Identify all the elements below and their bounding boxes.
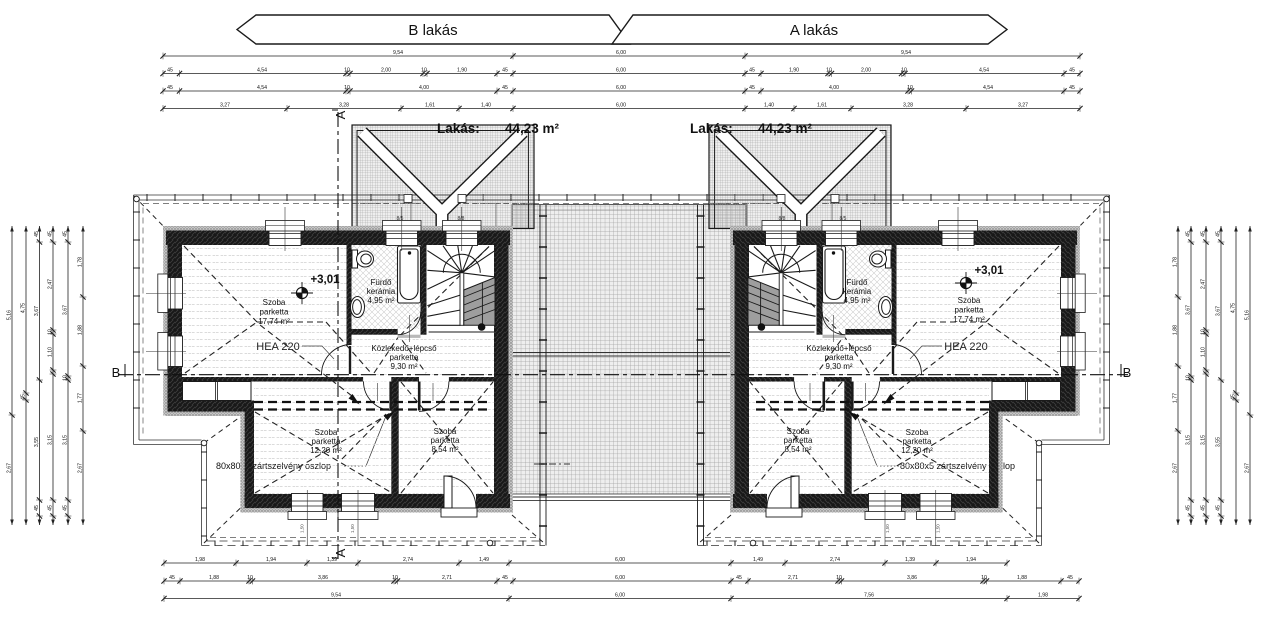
svg-text:Szoba: Szoba: [263, 298, 286, 307]
svg-text:4,54: 4,54: [983, 85, 993, 91]
svg-text:45: 45: [1186, 505, 1192, 511]
svg-text:45: 45: [502, 575, 508, 581]
svg-text:4,54: 4,54: [979, 68, 989, 74]
svg-text:45: 45: [167, 68, 173, 74]
svg-text:kerámia: kerámia: [843, 287, 872, 296]
svg-text:10: 10: [1186, 375, 1192, 381]
svg-text:B lakás: B lakás: [408, 22, 457, 39]
svg-text:HEA 220: HEA 220: [944, 341, 987, 353]
svg-text:10: 10: [981, 575, 987, 581]
svg-text:2,71: 2,71: [442, 575, 452, 581]
svg-text:10: 10: [48, 329, 54, 335]
svg-text:9,54: 9,54: [393, 50, 403, 56]
svg-text:45: 45: [1067, 575, 1073, 581]
svg-text:1,50: 1,50: [936, 524, 941, 533]
svg-text:10: 10: [247, 575, 253, 581]
svg-text:Közlekedő+lépcső: Közlekedő+lépcső: [806, 344, 872, 353]
svg-text:1,88: 1,88: [1017, 575, 1027, 581]
svg-text:10: 10: [63, 375, 69, 381]
svg-text:4,95 m²: 4,95 m²: [367, 296, 394, 305]
svg-text:44,23 m²: 44,23 m²: [758, 121, 813, 136]
svg-text:45: 45: [48, 231, 54, 237]
svg-text:44,23 m²: 44,23 m²: [505, 121, 560, 136]
svg-text:3,86: 3,86: [907, 575, 917, 581]
svg-text:45: 45: [736, 575, 742, 581]
svg-text:A: A: [333, 110, 348, 119]
svg-text:Szoba: Szoba: [315, 428, 338, 437]
svg-text:9,54: 9,54: [331, 593, 341, 599]
svg-text:3,67: 3,67: [34, 306, 40, 316]
svg-text:8/8: 8/8: [779, 216, 786, 222]
svg-text:45: 45: [1231, 394, 1237, 400]
svg-text:A: A: [333, 548, 348, 557]
svg-text:2,00: 2,00: [861, 68, 871, 74]
svg-text:6,00: 6,00: [616, 50, 626, 56]
svg-text:45: 45: [1186, 231, 1192, 237]
svg-text:1,88: 1,88: [1173, 325, 1179, 335]
svg-text:1,90: 1,90: [789, 68, 799, 74]
svg-text:6,00: 6,00: [615, 575, 625, 581]
svg-text:1,77: 1,77: [1173, 393, 1179, 403]
svg-text:9,30 m²: 9,30 m²: [825, 362, 852, 371]
svg-text:Szoba: Szoba: [787, 427, 810, 436]
svg-text:Szoba: Szoba: [434, 427, 457, 436]
svg-text:9,54: 9,54: [901, 50, 911, 56]
svg-text:4,00: 4,00: [419, 85, 429, 91]
svg-text:45: 45: [167, 85, 173, 91]
svg-text:45: 45: [1201, 231, 1207, 237]
svg-text:45: 45: [169, 575, 175, 581]
svg-text:8/8: 8/8: [458, 216, 465, 222]
svg-text:45: 45: [48, 505, 54, 511]
svg-text:4,00: 4,00: [829, 85, 839, 91]
svg-text:1,88: 1,88: [209, 575, 219, 581]
svg-text:+3,01: +3,01: [310, 274, 340, 286]
svg-text:9,30 m²: 9,30 m²: [390, 362, 417, 371]
svg-text:10: 10: [901, 68, 907, 74]
svg-text:3,15: 3,15: [63, 435, 69, 445]
svg-text:6,00: 6,00: [616, 103, 626, 109]
svg-text:4,54: 4,54: [257, 68, 267, 74]
svg-text:6,00: 6,00: [615, 557, 625, 563]
svg-text:1,90: 1,90: [457, 68, 467, 74]
svg-text:parketta: parketta: [825, 353, 854, 362]
svg-text:2,67: 2,67: [78, 463, 84, 473]
svg-text:1,98: 1,98: [195, 557, 205, 563]
svg-text:3,86: 3,86: [318, 575, 328, 581]
svg-text:2,47: 2,47: [1201, 279, 1207, 289]
svg-text:4,75: 4,75: [1231, 303, 1237, 313]
svg-text:1,49: 1,49: [479, 557, 489, 563]
svg-text:45: 45: [63, 231, 69, 237]
svg-text:8,54 m²: 8,54 m²: [431, 445, 458, 454]
svg-text:3,27: 3,27: [1018, 103, 1028, 109]
svg-text:2,74: 2,74: [403, 557, 413, 563]
svg-text:Lakás:: Lakás:: [437, 121, 480, 136]
svg-text:2,71: 2,71: [788, 575, 798, 581]
svg-text:45: 45: [34, 505, 40, 511]
svg-text:45: 45: [749, 85, 755, 91]
svg-text:Szoba: Szoba: [906, 428, 929, 437]
svg-text:3,15: 3,15: [48, 435, 54, 445]
svg-text:Fürdő: Fürdő: [847, 278, 868, 287]
svg-text:1,40: 1,40: [764, 103, 774, 109]
svg-text:45: 45: [1216, 231, 1222, 237]
svg-text:45: 45: [1201, 505, 1207, 511]
svg-text:10: 10: [907, 85, 913, 91]
svg-text:10: 10: [344, 85, 350, 91]
svg-text:B: B: [112, 365, 121, 380]
svg-text:5,16: 5,16: [7, 310, 13, 320]
svg-text:7,56: 7,56: [864, 593, 874, 599]
svg-text:45: 45: [749, 68, 755, 74]
svg-text:1,61: 1,61: [425, 103, 435, 109]
svg-text:6,00: 6,00: [616, 68, 626, 74]
svg-text:17,74 m²: 17,74 m²: [258, 317, 290, 326]
svg-text:1,88: 1,88: [78, 325, 84, 335]
svg-text:2,47: 2,47: [48, 279, 54, 289]
svg-text:3,15: 3,15: [1201, 435, 1207, 445]
svg-text:1,77: 1,77: [78, 393, 84, 403]
svg-text:3,67: 3,67: [1186, 305, 1192, 315]
svg-text:10: 10: [392, 575, 398, 581]
svg-text:10: 10: [1201, 329, 1207, 335]
svg-text:B: B: [1123, 365, 1132, 380]
svg-text:1,10: 1,10: [48, 347, 54, 357]
svg-text:10: 10: [826, 68, 832, 74]
svg-text:parketta: parketta: [390, 353, 419, 362]
svg-text:2,00: 2,00: [381, 68, 391, 74]
svg-text:10: 10: [836, 575, 842, 581]
svg-text:45: 45: [63, 505, 69, 511]
svg-text:45: 45: [21, 394, 27, 400]
svg-text:3,67: 3,67: [63, 305, 69, 315]
svg-text:1,50: 1,50: [300, 524, 305, 533]
svg-text:3,28: 3,28: [903, 103, 913, 109]
svg-text:45: 45: [1069, 85, 1075, 91]
svg-text:45: 45: [1069, 68, 1075, 74]
svg-text:2,67: 2,67: [1173, 463, 1179, 473]
svg-text:45: 45: [34, 231, 40, 237]
svg-text:parketta: parketta: [784, 436, 813, 445]
svg-text:3,55: 3,55: [34, 437, 40, 447]
svg-text:parketta: parketta: [431, 436, 460, 445]
svg-text:A lakás: A lakás: [790, 22, 838, 39]
svg-text:parketta: parketta: [955, 306, 984, 315]
svg-text:1,49: 1,49: [753, 557, 763, 563]
svg-text:1,94: 1,94: [966, 557, 976, 563]
svg-text:4,75: 4,75: [21, 303, 27, 313]
svg-text:HEA 220: HEA 220: [256, 341, 299, 353]
svg-text:8,54 m²: 8,54 m²: [784, 445, 811, 454]
svg-text:1,40: 1,40: [481, 103, 491, 109]
svg-text:1,39: 1,39: [905, 557, 915, 563]
svg-text:1,10: 1,10: [1201, 347, 1207, 357]
svg-text:45: 45: [502, 85, 508, 91]
svg-text:1,78: 1,78: [78, 257, 84, 267]
svg-text:3,67: 3,67: [1216, 306, 1222, 316]
svg-text:parketta: parketta: [312, 437, 341, 446]
svg-text:6,00: 6,00: [616, 85, 626, 91]
svg-text:1,78: 1,78: [1173, 257, 1179, 267]
svg-text:3,15: 3,15: [1186, 435, 1192, 445]
svg-text:3,27: 3,27: [220, 103, 230, 109]
svg-text:Lakás:: Lakás:: [690, 121, 733, 136]
svg-text:Fürdő: Fürdő: [371, 278, 392, 287]
svg-text:1,61: 1,61: [817, 103, 827, 109]
svg-text:4,54: 4,54: [257, 85, 267, 91]
svg-text:10: 10: [421, 68, 427, 74]
svg-text:2,74: 2,74: [830, 557, 840, 563]
svg-text:6,00: 6,00: [615, 593, 625, 599]
svg-text:parketta: parketta: [260, 308, 289, 317]
svg-text:10: 10: [344, 68, 350, 74]
svg-text:Szoba: Szoba: [958, 296, 981, 305]
svg-text:Közlekedő+lépcső: Közlekedő+lépcső: [371, 344, 437, 353]
svg-text:parketta: parketta: [903, 437, 932, 446]
svg-text:45: 45: [1216, 505, 1222, 511]
svg-text:2,67: 2,67: [1245, 463, 1251, 473]
svg-text:1,50: 1,50: [350, 524, 355, 533]
svg-text:2,67: 2,67: [7, 463, 13, 473]
svg-text:kerámia: kerámia: [367, 287, 396, 296]
svg-text:12,20 m²: 12,20 m²: [901, 446, 933, 455]
svg-text:8/5: 8/5: [840, 216, 847, 222]
svg-text:17,74 m²: 17,74 m²: [953, 315, 985, 324]
svg-text:8/5: 8/5: [397, 216, 404, 222]
svg-text:1,98: 1,98: [1038, 593, 1048, 599]
svg-text:1,94: 1,94: [266, 557, 276, 563]
svg-text:12,20 m²: 12,20 m²: [310, 446, 342, 455]
svg-text:3,55: 3,55: [1216, 437, 1222, 447]
svg-text:1,50: 1,50: [885, 524, 890, 533]
svg-text:45: 45: [502, 68, 508, 74]
svg-text:+3,01: +3,01: [974, 265, 1004, 277]
svg-text:4,95 m²: 4,95 m²: [843, 296, 870, 305]
svg-text:3,28: 3,28: [339, 103, 349, 109]
svg-text:5,16: 5,16: [1245, 310, 1251, 320]
